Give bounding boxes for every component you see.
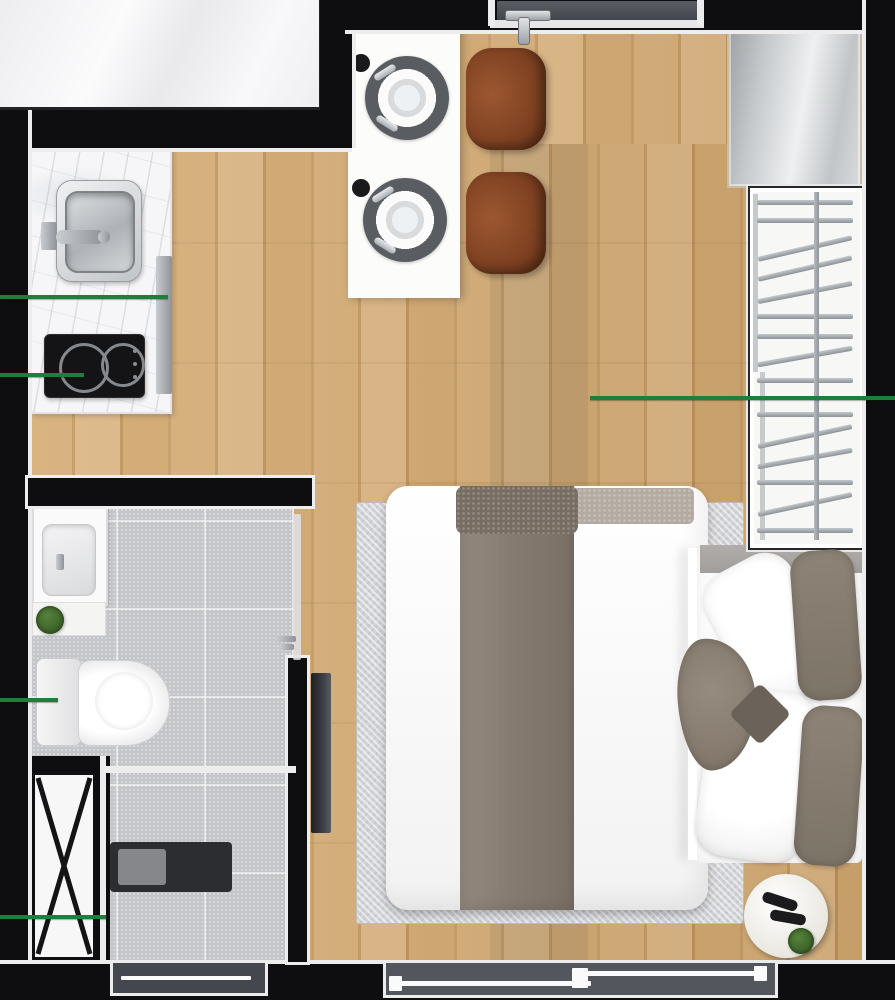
entrance-door-frame-right	[697, 0, 704, 26]
closet-hangers	[750, 188, 864, 548]
clothes-hanger	[757, 281, 852, 304]
toilet-tank	[36, 658, 82, 746]
faucet-spout	[56, 230, 104, 244]
closet-center-rail	[814, 192, 819, 540]
bathroom-window	[110, 960, 268, 996]
clothes-hanger	[758, 424, 853, 449]
entrance-door-handle-stem	[518, 17, 530, 45]
dimension-line	[0, 915, 106, 919]
pillow-taupe-top	[789, 548, 863, 702]
tall-cabinet	[727, 30, 862, 188]
faucet-tip	[98, 231, 110, 243]
bathroom-door-handle	[276, 636, 296, 642]
plant-pot-side-table	[788, 928, 814, 954]
window-pane-right-handle	[754, 966, 767, 981]
dimension-line	[590, 396, 895, 400]
cup-bottom	[352, 179, 370, 197]
wall-tv	[311, 673, 331, 833]
wall-right	[862, 0, 895, 1000]
bathroom-vanity	[32, 502, 108, 606]
clothes-hanger	[757, 448, 852, 470]
faucet-lever	[41, 222, 57, 250]
dining-table	[348, 28, 460, 298]
induction-cooktop	[44, 334, 145, 398]
clothes-hanger	[757, 378, 853, 383]
clothes-hanger	[757, 334, 853, 339]
spoon-icon	[371, 185, 395, 204]
dining-chair-bottom	[466, 172, 546, 274]
bed-blanket-top	[572, 488, 694, 524]
clothes-hanger	[757, 200, 853, 205]
shower-partition	[104, 766, 296, 773]
fork-icon	[375, 114, 399, 133]
window-pane-junction	[572, 968, 588, 988]
wall-top-left	[0, 110, 352, 152]
duct-x-icon	[35, 775, 93, 957]
bathroom-window-pane	[121, 976, 251, 980]
vanity-faucet	[56, 554, 64, 570]
bathroom-door-handle-grip	[280, 644, 294, 650]
clothes-hanger	[757, 218, 853, 223]
clothes-hanger	[757, 346, 852, 368]
clothes-hanger	[757, 480, 853, 485]
chase-edge-line	[100, 756, 106, 962]
wall-bathroom-top	[28, 478, 312, 506]
plant-pot-bathroom	[36, 606, 64, 634]
clothes-hanger	[757, 528, 853, 533]
window-pane-left	[395, 981, 591, 986]
shower-mat	[110, 842, 232, 892]
clothes-hanger	[758, 255, 853, 281]
bed-runner-fold	[456, 486, 578, 534]
counter-side-panel	[156, 256, 172, 394]
dimension-line	[0, 373, 84, 377]
window-pane-left-handle	[389, 976, 402, 991]
clothes-hanger	[757, 314, 853, 319]
wall-bathroom-right	[288, 658, 307, 962]
burner-right	[101, 343, 145, 387]
clothes-hanger	[758, 492, 853, 517]
shower-drain	[118, 849, 166, 885]
toilet-bowl	[78, 660, 170, 746]
charger-plate-bottom	[363, 178, 447, 262]
fork-icon	[373, 236, 397, 255]
bed-runner-blanket	[460, 486, 574, 910]
pillow-taupe-bottom	[792, 704, 865, 868]
duct-shaft	[32, 772, 96, 960]
window-pane-right	[579, 971, 757, 976]
main-window	[383, 960, 778, 998]
dining-chair-top	[466, 48, 546, 150]
dimension-line	[0, 698, 58, 702]
clothes-hanger	[757, 412, 853, 417]
cooktop-control-dot	[133, 375, 137, 379]
floorplan-canvas	[0, 0, 895, 1000]
cooktop-control-dot	[133, 349, 137, 353]
toilet-rim	[95, 672, 153, 730]
charger-plate-top	[365, 56, 449, 140]
entrance-door-frame-left	[488, 0, 495, 26]
wall-left	[0, 110, 32, 1000]
outside-area	[0, 0, 322, 110]
spoon-icon	[373, 63, 397, 82]
wardrobe-closet	[748, 186, 866, 550]
dimension-line	[0, 295, 168, 299]
vanity-basin	[42, 524, 96, 596]
cooktop-control-dot	[133, 362, 137, 366]
